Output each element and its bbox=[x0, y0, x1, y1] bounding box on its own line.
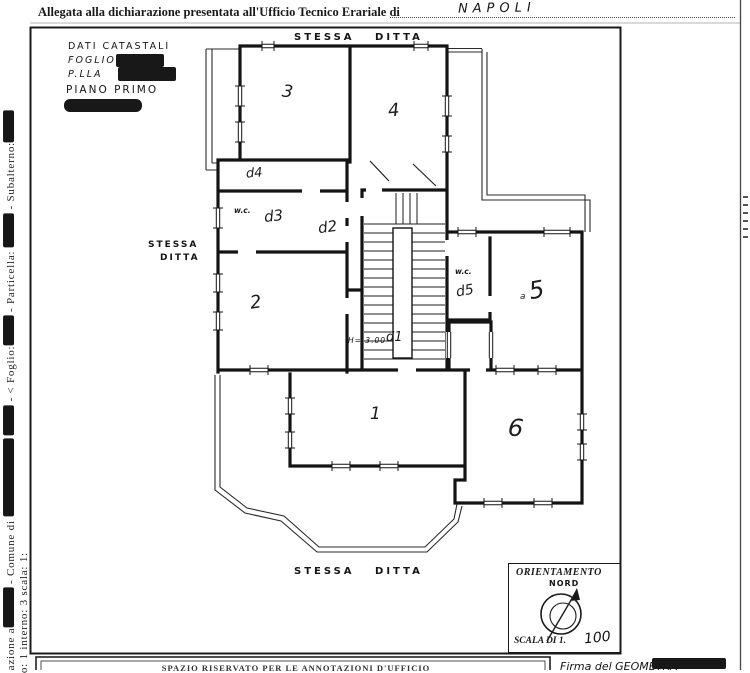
margin-text-segment: - Comune di bbox=[5, 516, 17, 587]
stessa-ditta-left-2: DITTA bbox=[160, 253, 200, 263]
stairs bbox=[364, 193, 445, 359]
margin-text-segment: azione a bbox=[5, 627, 17, 670]
footer-office-box-label: SPAZIO RISERVATO PER LE ANNOTAZIONI D'UF… bbox=[96, 663, 496, 673]
redaction-blob-signature bbox=[652, 658, 726, 669]
room-label-5-prefix: a bbox=[520, 292, 526, 302]
height-note: H= 3.00 bbox=[348, 336, 386, 345]
particella-label: P.LLA bbox=[68, 69, 103, 80]
redaction-blob bbox=[3, 110, 14, 142]
door-label-d3: d3 bbox=[263, 206, 284, 226]
header-city-handwritten: NAPOLI bbox=[452, 0, 542, 17]
margin-text-segment: - Particella: bbox=[5, 247, 17, 316]
scanned-cadastral-document: { "header": { "label": "Allegata alla di… bbox=[0, 0, 750, 670]
orientation-title: ORIENTAMENTO bbox=[516, 567, 602, 578]
room-label-6: 6 bbox=[507, 413, 525, 442]
stessa-ditta-bottom: STESSA DITTA bbox=[294, 566, 423, 577]
stessa-ditta-top: STESSA DITTA bbox=[294, 32, 423, 43]
scale-value: 100 bbox=[583, 629, 611, 648]
margin-inner-line: o: 1 interno: 3 scala: 1: bbox=[18, 552, 30, 673]
door-label-d2: d2 bbox=[317, 217, 338, 237]
door-label-d4: d4 bbox=[245, 165, 263, 181]
redaction-blob bbox=[3, 315, 14, 345]
room-label-1: 1 bbox=[370, 404, 381, 424]
redaction-blob-foglio bbox=[116, 54, 164, 67]
wc-label-right: w.c. bbox=[455, 267, 472, 276]
margin-reference-line: azione a - Comune di - < Foglio: - Parti… bbox=[3, 110, 17, 670]
wc-label-left: w.c. bbox=[234, 206, 251, 215]
scale-label: SCALA DI 1. bbox=[514, 636, 566, 646]
redaction-blob-sub bbox=[64, 99, 142, 112]
margin-text-segment: - Subalterno: bbox=[5, 142, 17, 213]
redaction-blob bbox=[3, 438, 14, 516]
room-label-4: 4 bbox=[387, 100, 400, 122]
margin-text-segment: - < Foglio: bbox=[5, 345, 17, 405]
redaction-blob bbox=[3, 587, 14, 627]
piano-label: PIANO PRIMO bbox=[66, 84, 158, 96]
door-label-d5: d5 bbox=[455, 282, 475, 301]
redaction-blob bbox=[3, 405, 14, 435]
fold-marks bbox=[743, 196, 748, 238]
plan-frame bbox=[31, 28, 621, 654]
redaction-blob bbox=[3, 213, 14, 247]
door-label-d1: d1 bbox=[386, 330, 403, 345]
door-leaves bbox=[370, 161, 436, 186]
foglio-label: FOGLIO bbox=[68, 55, 116, 66]
redaction-blob-particella bbox=[118, 67, 176, 81]
stessa-ditta-left-1: STESSA bbox=[148, 240, 198, 250]
header-label: Allegata alla dichiarazione presentata a… bbox=[38, 5, 400, 20]
header-dotted-line bbox=[390, 3, 735, 18]
north-label: NORD bbox=[549, 579, 579, 588]
cadastral-title: DATI CATASTALI bbox=[68, 41, 170, 52]
